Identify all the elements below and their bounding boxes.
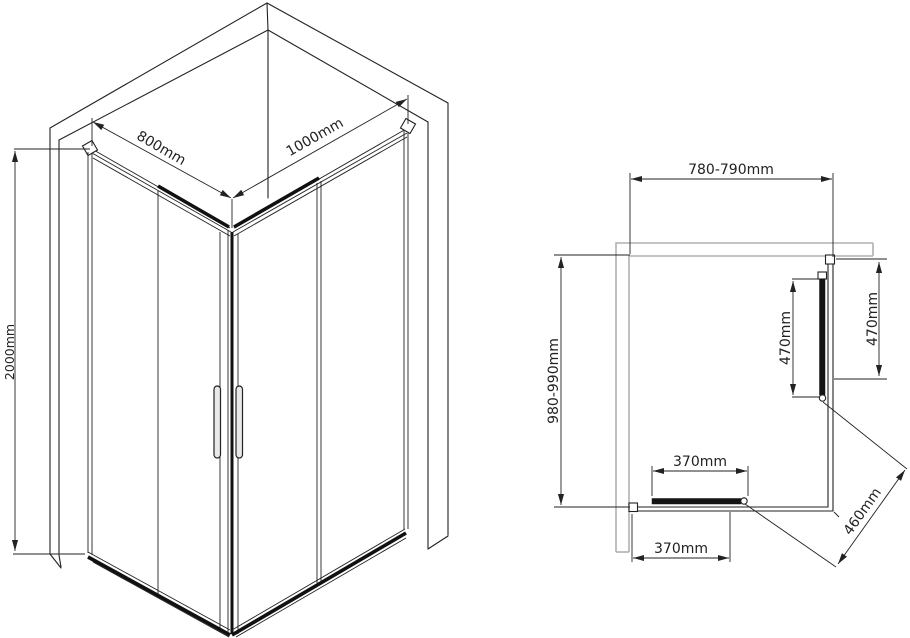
front-door-label: 370mm	[673, 454, 727, 470]
corner-connector-left	[629, 503, 638, 512]
canvas-background	[0, 0, 910, 638]
door-panel-bar	[652, 499, 741, 505]
door-roller	[741, 498, 747, 504]
door-panel-right	[818, 272, 827, 401]
height-dimension-label: 2000mm	[2, 324, 17, 380]
plan-depth-label: 980-990mm	[546, 338, 562, 424]
door-handle-left	[214, 386, 221, 458]
door-panel-bar	[820, 279, 826, 395]
door-panel-top-cap	[818, 272, 827, 279]
side-fixed-label: 470mm	[865, 292, 881, 346]
door-panel-bottom	[652, 498, 747, 504]
door-roller	[819, 395, 825, 401]
plan-width-label: 780-790mm	[688, 162, 774, 178]
technical-drawing-canvas: 2000mm 800mm 1000mm	[0, 0, 910, 638]
front-opening-label: 370mm	[654, 541, 708, 557]
side-door-label: 470mm	[778, 311, 794, 365]
door-handle-right	[236, 386, 243, 458]
